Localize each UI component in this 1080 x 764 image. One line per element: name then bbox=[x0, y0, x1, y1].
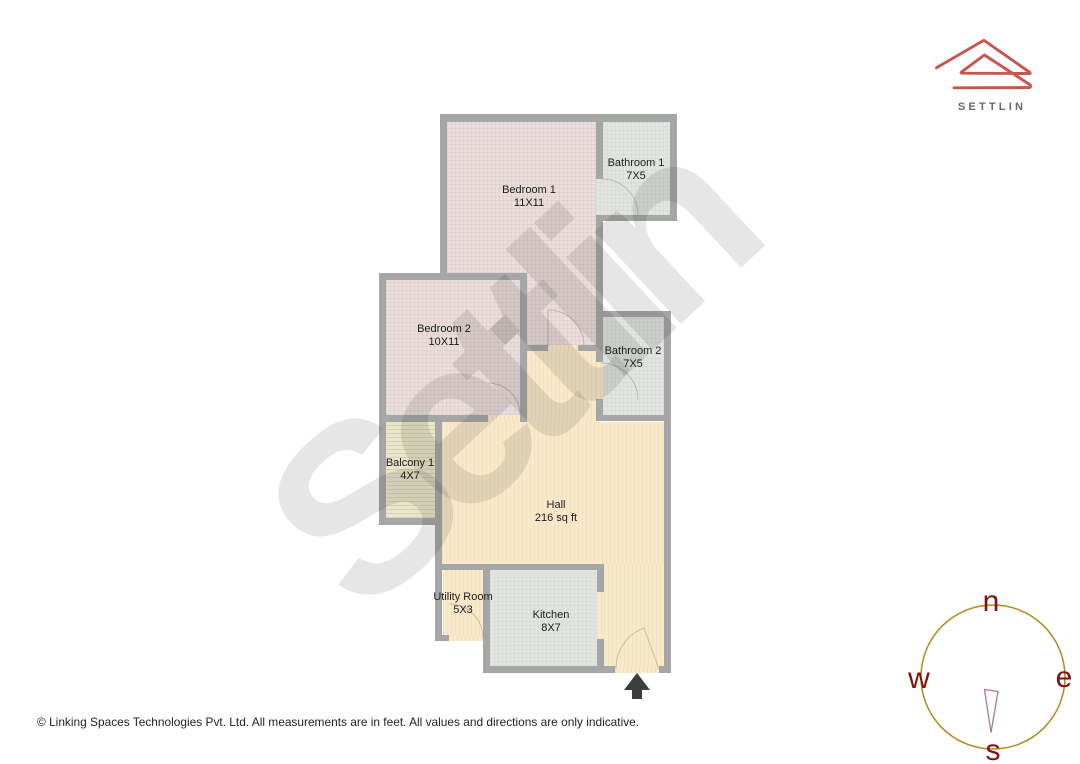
svg-text:e: e bbox=[1056, 661, 1073, 694]
svg-text:w: w bbox=[907, 662, 930, 695]
svg-text:s: s bbox=[986, 734, 1001, 764]
svg-text:SETTLIN: SETTLIN bbox=[958, 101, 1026, 113]
svg-text:n: n bbox=[983, 585, 1000, 618]
